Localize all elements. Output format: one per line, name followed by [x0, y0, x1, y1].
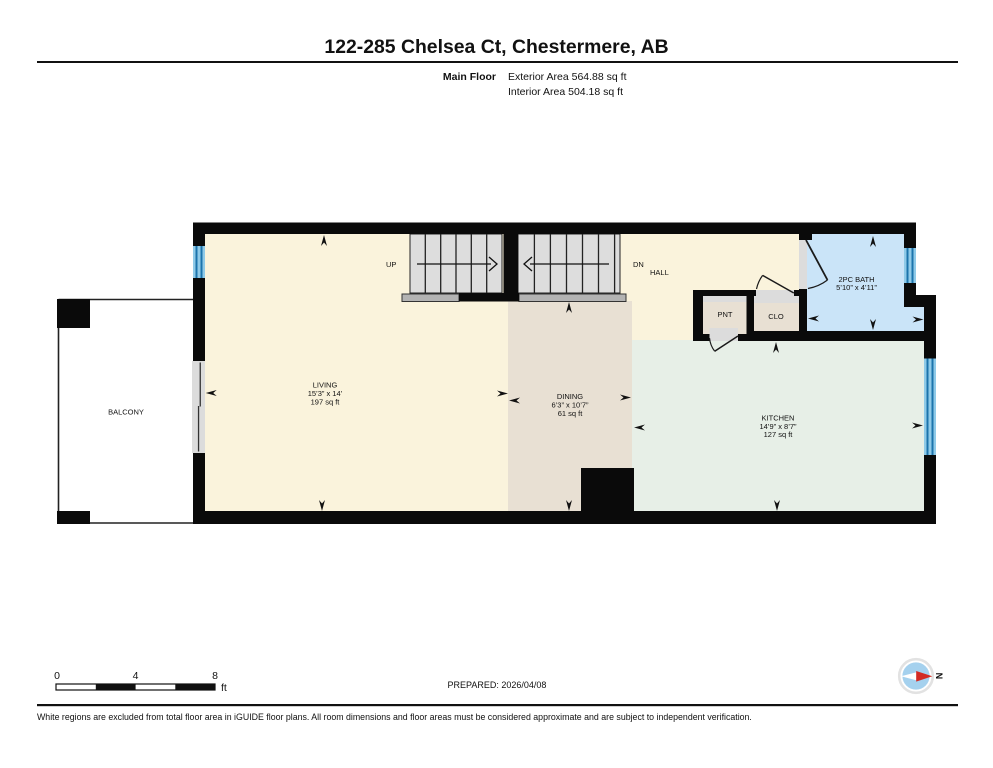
svg-text:PREPARED: 2026/04/08: PREPARED: 2026/04/08 [448, 680, 547, 690]
svg-text:ft: ft [221, 682, 227, 694]
svg-text:CLO: CLO [768, 312, 784, 321]
svg-text:197 sq ft: 197 sq ft [311, 397, 341, 406]
svg-text:UP: UP [386, 260, 396, 269]
svg-text:DN: DN [633, 260, 644, 269]
svg-text:5’10” x 4’11”: 5’10” x 4’11” [836, 283, 877, 292]
svg-text:8: 8 [212, 670, 218, 682]
svg-text:PNT: PNT [718, 310, 733, 319]
svg-text:127 sq ft: 127 sq ft [764, 430, 794, 439]
svg-text:N: N [934, 673, 944, 680]
svg-text:HALL: HALL [650, 268, 669, 277]
svg-text:White regions are excluded fro: White regions are excluded from total fl… [37, 712, 752, 722]
svg-text:4: 4 [133, 670, 139, 682]
svg-text:61 sq ft: 61 sq ft [558, 409, 584, 418]
svg-text:0: 0 [54, 670, 60, 682]
svg-text:BALCONY: BALCONY [108, 408, 144, 417]
